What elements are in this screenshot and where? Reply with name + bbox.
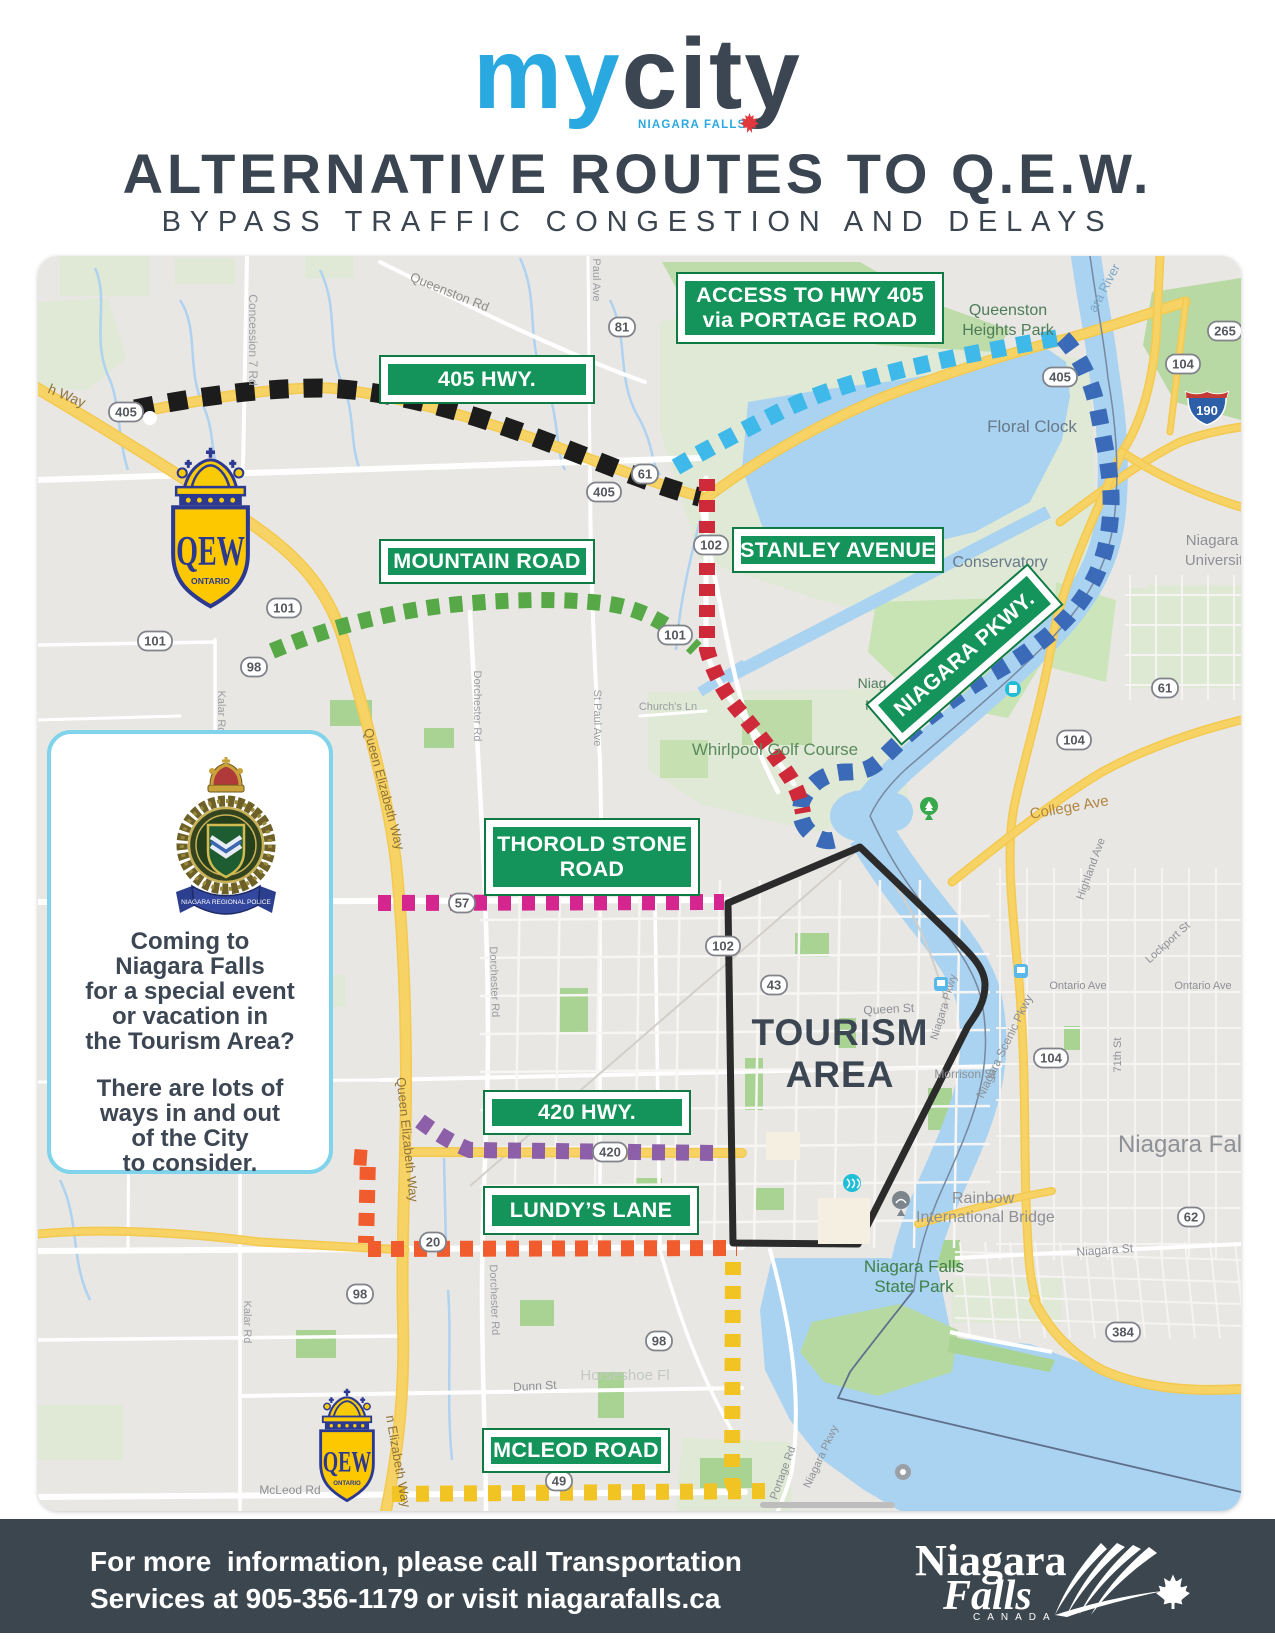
svg-text:Universit: Universit (1185, 552, 1241, 569)
svg-text:101: 101 (664, 628, 686, 643)
svg-text:Ontario Ave: Ontario Ave (1174, 980, 1231, 992)
svg-text:98: 98 (247, 660, 261, 675)
svg-text:Ontario Ave: Ontario Ave (1049, 980, 1106, 992)
svg-text:Conservatory: Conservatory (952, 554, 1047, 571)
svg-text:61: 61 (1158, 681, 1172, 696)
svg-text:57: 57 (455, 896, 469, 911)
svg-text:Church's Ln: Church's Ln (639, 701, 697, 713)
svg-text:Dunn St: Dunn St (513, 1378, 558, 1394)
svg-text:State Park: State Park (874, 1277, 954, 1296)
svg-text:101: 101 (144, 634, 166, 649)
svg-text:61: 61 (638, 467, 652, 482)
svg-text:Concession 7 Rd: Concession 7 Rd (246, 294, 260, 385)
svg-text:43: 43 (767, 978, 781, 993)
svg-text:104: 104 (1063, 733, 1085, 748)
svg-text:98: 98 (652, 1334, 666, 1349)
svg-text:Dorchester Rd: Dorchester Rd (487, 946, 501, 1017)
svg-text:98: 98 (353, 1287, 367, 1302)
svg-text:420: 420 (599, 1145, 621, 1160)
svg-text:International Bridge: International Bridge (916, 1209, 1055, 1226)
svg-text:Rainbow: Rainbow (952, 1190, 1015, 1207)
svg-text:Kalar Rd: Kalar Rd (215, 691, 227, 734)
svg-text:104: 104 (1172, 357, 1194, 372)
svg-text:NIAGARA REGIONAL POLICE: NIAGARA REGIONAL POLICE (181, 899, 271, 906)
svg-text:Niagara: Niagara (1186, 532, 1239, 549)
svg-text:81: 81 (615, 320, 629, 335)
svg-text:104: 104 (1040, 1051, 1062, 1066)
svg-text:384: 384 (1112, 1325, 1134, 1340)
svg-text:St Paul Ave: St Paul Ave (591, 690, 603, 747)
svg-text:265: 265 (1214, 324, 1236, 339)
svg-text:101: 101 (273, 601, 295, 616)
svg-text:Floral Clock: Floral Clock (987, 417, 1077, 436)
svg-text:Paul Ave: Paul Ave (590, 258, 602, 301)
svg-text:Whirlpool Golf Course: Whirlpool Golf Course (692, 740, 858, 759)
svg-text:71th St: 71th St (1112, 1038, 1124, 1073)
svg-text:405: 405 (1049, 370, 1071, 385)
svg-text:Niagara Falls: Niagara Falls (864, 1257, 964, 1276)
svg-text:49: 49 (552, 1474, 566, 1489)
svg-text:Niagara Fal: Niagara Fal (1118, 1131, 1241, 1158)
svg-text:Dorchester Rd: Dorchester Rd (487, 1264, 501, 1335)
svg-text:Kalar Rd: Kalar Rd (241, 1301, 253, 1344)
svg-text:62: 62 (1184, 1210, 1198, 1225)
svg-text:Dorchester Rd: Dorchester Rd (471, 671, 483, 742)
svg-text:190: 190 (1196, 403, 1218, 418)
svg-text:Horseshoe Fl: Horseshoe Fl (580, 1367, 669, 1384)
svg-text:20: 20 (426, 1235, 440, 1250)
svg-text:102: 102 (712, 939, 734, 954)
svg-text:405: 405 (115, 405, 137, 420)
svg-text:102: 102 (700, 538, 722, 553)
svg-text:Queenston: Queenston (969, 302, 1047, 319)
svg-text:Heights Park: Heights Park (962, 322, 1055, 339)
svg-text:405: 405 (593, 485, 615, 500)
svg-text:CANADA: CANADA (973, 1612, 1057, 1623)
